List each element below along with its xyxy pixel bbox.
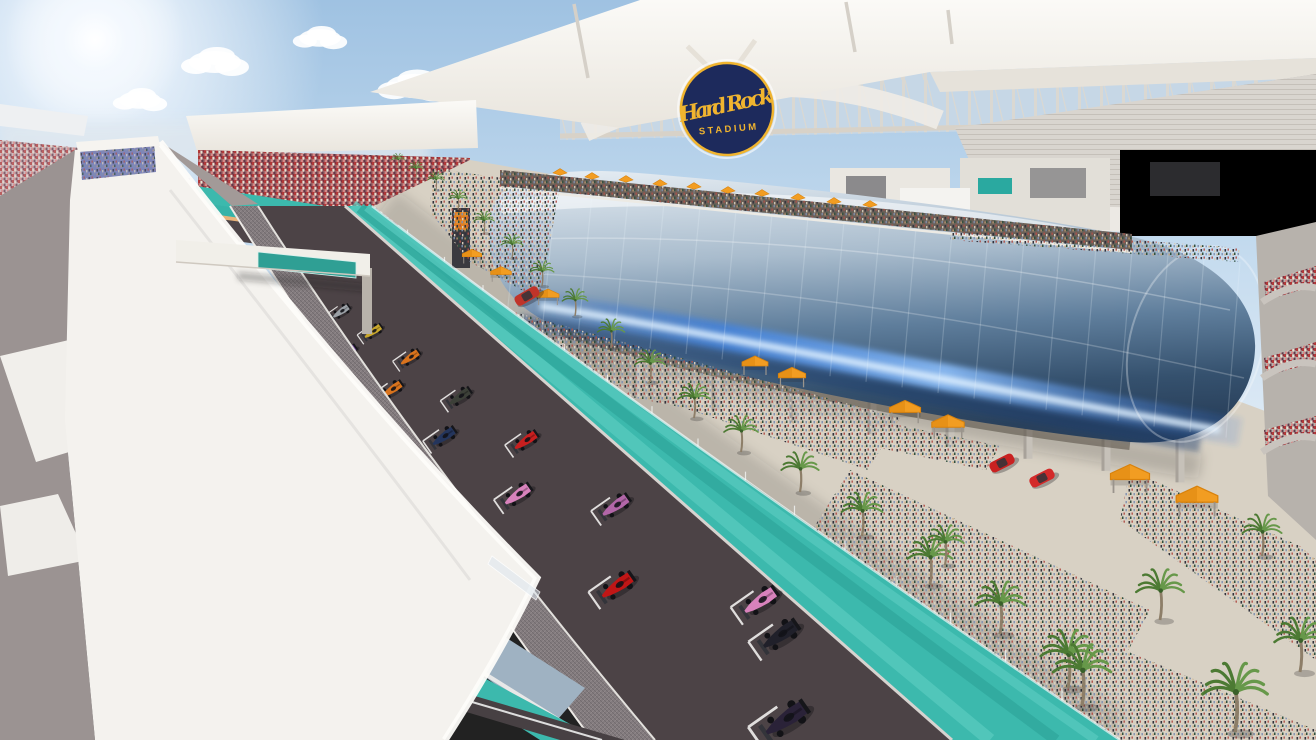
building-opening-3 [1150,162,1220,196]
building-opening-2 [1030,168,1086,198]
beam-pylon [362,268,372,334]
teal-signage [978,178,1012,194]
miami-f1-rendering: Hard Rock STADIUM [0,0,1316,740]
scene-canvas: Hard Rock STADIUM [0,0,1316,740]
